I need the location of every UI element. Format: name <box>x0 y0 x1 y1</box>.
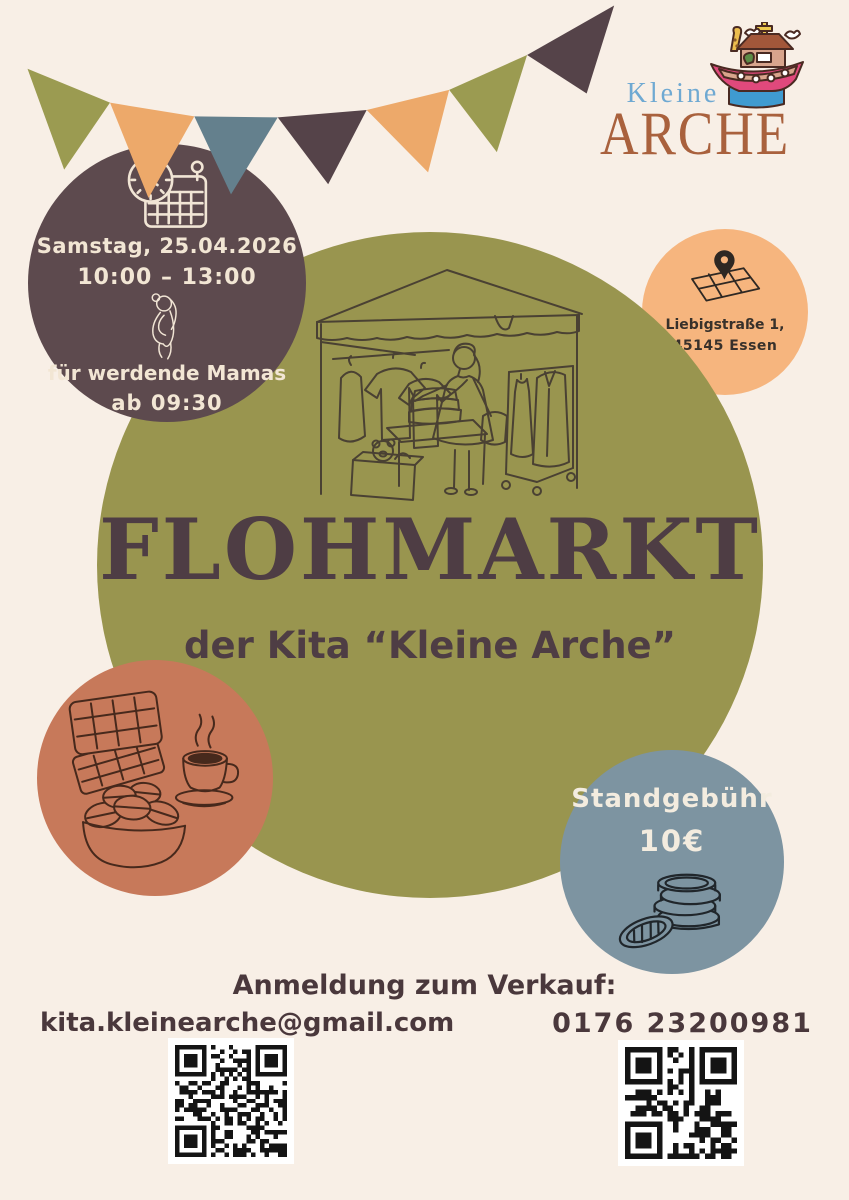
bunting-banner <box>0 0 660 220</box>
map-pin-icon <box>678 249 772 309</box>
pregnant-woman-icon <box>136 291 198 361</box>
pennant <box>449 55 527 152</box>
email-qr-code <box>168 1038 294 1164</box>
poster-subtitle: der Kita “Kleine Arche” <box>97 624 763 667</box>
address-line-2: 45145 Essen <box>673 338 778 354</box>
event-date: Samstag, 25.04.2026 <box>37 234 298 258</box>
pennant <box>28 69 111 170</box>
contact-email: kita.kleinearche@gmail.com <box>40 1008 450 1038</box>
phone-qr-code <box>618 1040 744 1166</box>
event-time: 10:00 – 13:00 <box>77 265 256 290</box>
pennant <box>110 103 194 198</box>
food-circle <box>37 660 273 896</box>
note-line-1: für werdende Mamas <box>48 361 286 385</box>
coins-illustration <box>598 860 746 952</box>
pennant <box>194 116 277 194</box>
fee-price: 10€ <box>639 824 706 858</box>
pennant <box>278 110 367 184</box>
contact-heading: Anmeldung zum Verkauf: <box>0 970 849 1001</box>
poster-title: FLOHMARKT <box>97 500 763 599</box>
waffles-coffee-macarons-illustration <box>48 671 262 885</box>
fee-label: Standgebühr <box>571 784 773 814</box>
address-line-1: Liebigstraße 1, <box>666 317 785 333</box>
fee-circle: Standgebühr 10€ <box>560 750 784 974</box>
flea-market-flyer: Kleine ARCHE Liebigstraße 1, 45145 Essen <box>0 0 849 1200</box>
market-stall-illustration <box>297 258 597 504</box>
contact-phone: 0176 23200981 <box>545 1008 820 1039</box>
pennant <box>367 90 450 172</box>
pennant <box>527 6 614 94</box>
note-line-2: ab 09:30 <box>111 391 222 415</box>
